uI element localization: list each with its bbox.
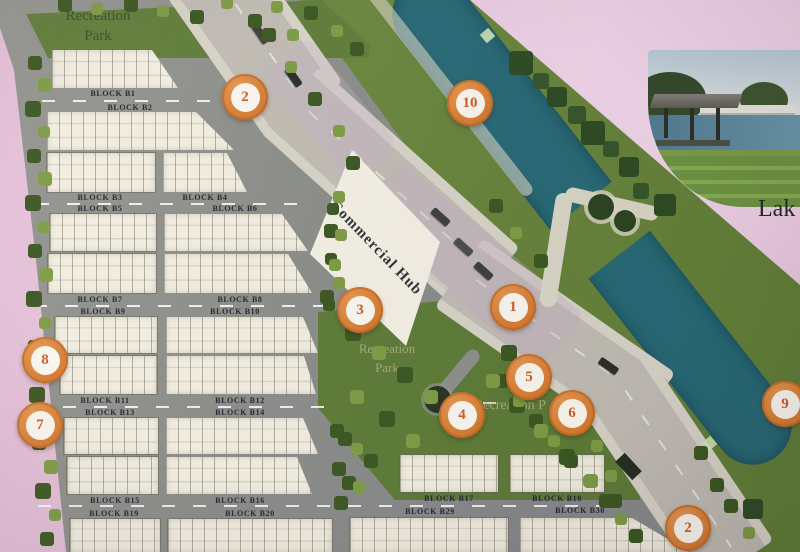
- map-marker-8[interactable]: 8: [22, 337, 68, 383]
- block-label: BLOCK B9: [48, 307, 158, 316]
- site-plan-map: BLOCK B1 BLOCK B2 BLOCK B3 BLOCK B4 BLOC…: [0, 0, 800, 552]
- photo-pavilion-post: [664, 108, 668, 138]
- block-label: BLOCK B8: [180, 295, 300, 304]
- marker-circle: 4: [439, 392, 485, 438]
- block-label: BLOCK B12: [180, 396, 300, 405]
- marker-number: 4: [448, 401, 477, 430]
- marker-number: 1: [499, 293, 528, 322]
- housing-block-b7: [48, 254, 156, 293]
- marker-number: 7: [26, 411, 55, 440]
- block-label: BLOCK B7: [45, 295, 155, 304]
- marker-circle: 1: [490, 284, 536, 330]
- marker-number: 5: [515, 363, 544, 392]
- block-label: BLOCK B10: [175, 307, 295, 316]
- map-marker-2b[interactable]: 2: [665, 505, 711, 551]
- housing-block-b29: [350, 518, 508, 552]
- marker-circle: 7: [17, 402, 63, 448]
- marker-number: 2: [674, 514, 703, 543]
- block-label: BLOCK B1: [48, 89, 178, 98]
- map-marker-3[interactable]: 3: [337, 287, 383, 333]
- marker-number: 9: [771, 390, 800, 419]
- housing-block-b16: [166, 457, 312, 494]
- block-label: BLOCK B5: [45, 204, 155, 213]
- marker-circle: 8: [22, 337, 68, 383]
- plaza-feature: [614, 210, 636, 232]
- block-label: BLOCK B29: [370, 507, 490, 516]
- marker-number: 3: [346, 296, 375, 325]
- marker-circle: 6: [549, 390, 595, 436]
- photo-pavilion-post: [716, 108, 720, 142]
- housing-block-b5: [50, 214, 156, 251]
- block-label: BLOCK B6: [175, 204, 295, 213]
- housing-block-b14: [166, 418, 318, 454]
- block-label: BLOCK B15: [60, 496, 170, 505]
- marker-circle: 3: [337, 287, 383, 333]
- photo-pavilion-post: [690, 108, 694, 140]
- map-marker-7[interactable]: 7: [17, 402, 63, 448]
- lake-photo-inset: [648, 50, 800, 207]
- map-marker-5[interactable]: 5: [506, 354, 552, 400]
- marker-number: 8: [31, 346, 60, 375]
- housing-block-b20: [168, 519, 332, 552]
- plaza-feature: [588, 194, 614, 220]
- map-marker-10[interactable]: 10: [447, 80, 493, 126]
- block-label: BLOCK B2: [60, 103, 200, 112]
- housing-block-b12: [166, 356, 316, 394]
- tree-cluster: [0, 0, 2, 2]
- marker-number: 6: [558, 399, 587, 428]
- block-label: BLOCK B30: [520, 506, 640, 515]
- map-marker-9[interactable]: 9: [762, 381, 800, 427]
- block-label: BLOCK B17: [395, 494, 503, 503]
- map-marker-1[interactable]: 1: [490, 284, 536, 330]
- marker-circle: 10: [447, 80, 493, 126]
- label-line: Park: [375, 360, 399, 375]
- recreation-park-label: Recreation Park: [36, 6, 160, 47]
- block-label: BLOCK B13: [55, 408, 165, 417]
- block-label: BLOCK B19: [60, 509, 168, 518]
- housing-block-b18: [510, 455, 604, 492]
- marker-number: 2: [231, 83, 260, 112]
- housing-block-b19: [70, 519, 160, 552]
- housing-block-b15: [67, 457, 158, 494]
- map-marker-4[interactable]: 4: [439, 392, 485, 438]
- label-line: Park: [84, 28, 112, 44]
- photo-deck: [656, 140, 730, 146]
- photo-water: [648, 115, 800, 153]
- block-label: BLOCK B11: [50, 396, 160, 405]
- map-marker-2[interactable]: 2: [222, 74, 268, 120]
- marker-number: 10: [456, 89, 485, 118]
- block-label: BLOCK B16: [180, 496, 300, 505]
- housing-block-b17: [400, 455, 498, 492]
- marker-circle: 9: [762, 381, 800, 427]
- label-line: Recreation: [359, 341, 415, 356]
- inset-caption: Lak: [758, 196, 795, 223]
- housing-block-b13: [64, 418, 158, 454]
- housing-block-b10: [166, 317, 318, 353]
- block-label: BLOCK B4: [150, 193, 260, 202]
- housing-block-b3: [47, 153, 155, 192]
- housing-block-b9: [55, 317, 157, 353]
- marker-circle: 2: [222, 74, 268, 120]
- marker-circle: 5: [506, 354, 552, 400]
- marker-circle: 2: [665, 505, 711, 551]
- photo-pavilion-roof: [650, 94, 743, 108]
- block-label: BLOCK B14: [180, 408, 300, 417]
- block-label: BLOCK B3: [45, 193, 155, 202]
- label-line: Recreation: [66, 8, 131, 24]
- block-label: BLOCK B20: [195, 509, 305, 518]
- recreation-park-label: Recreation Park: [328, 340, 446, 378]
- map-marker-6[interactable]: 6: [549, 390, 595, 436]
- housing-block-b11: [60, 356, 157, 394]
- block-label: BLOCK B18: [505, 494, 609, 503]
